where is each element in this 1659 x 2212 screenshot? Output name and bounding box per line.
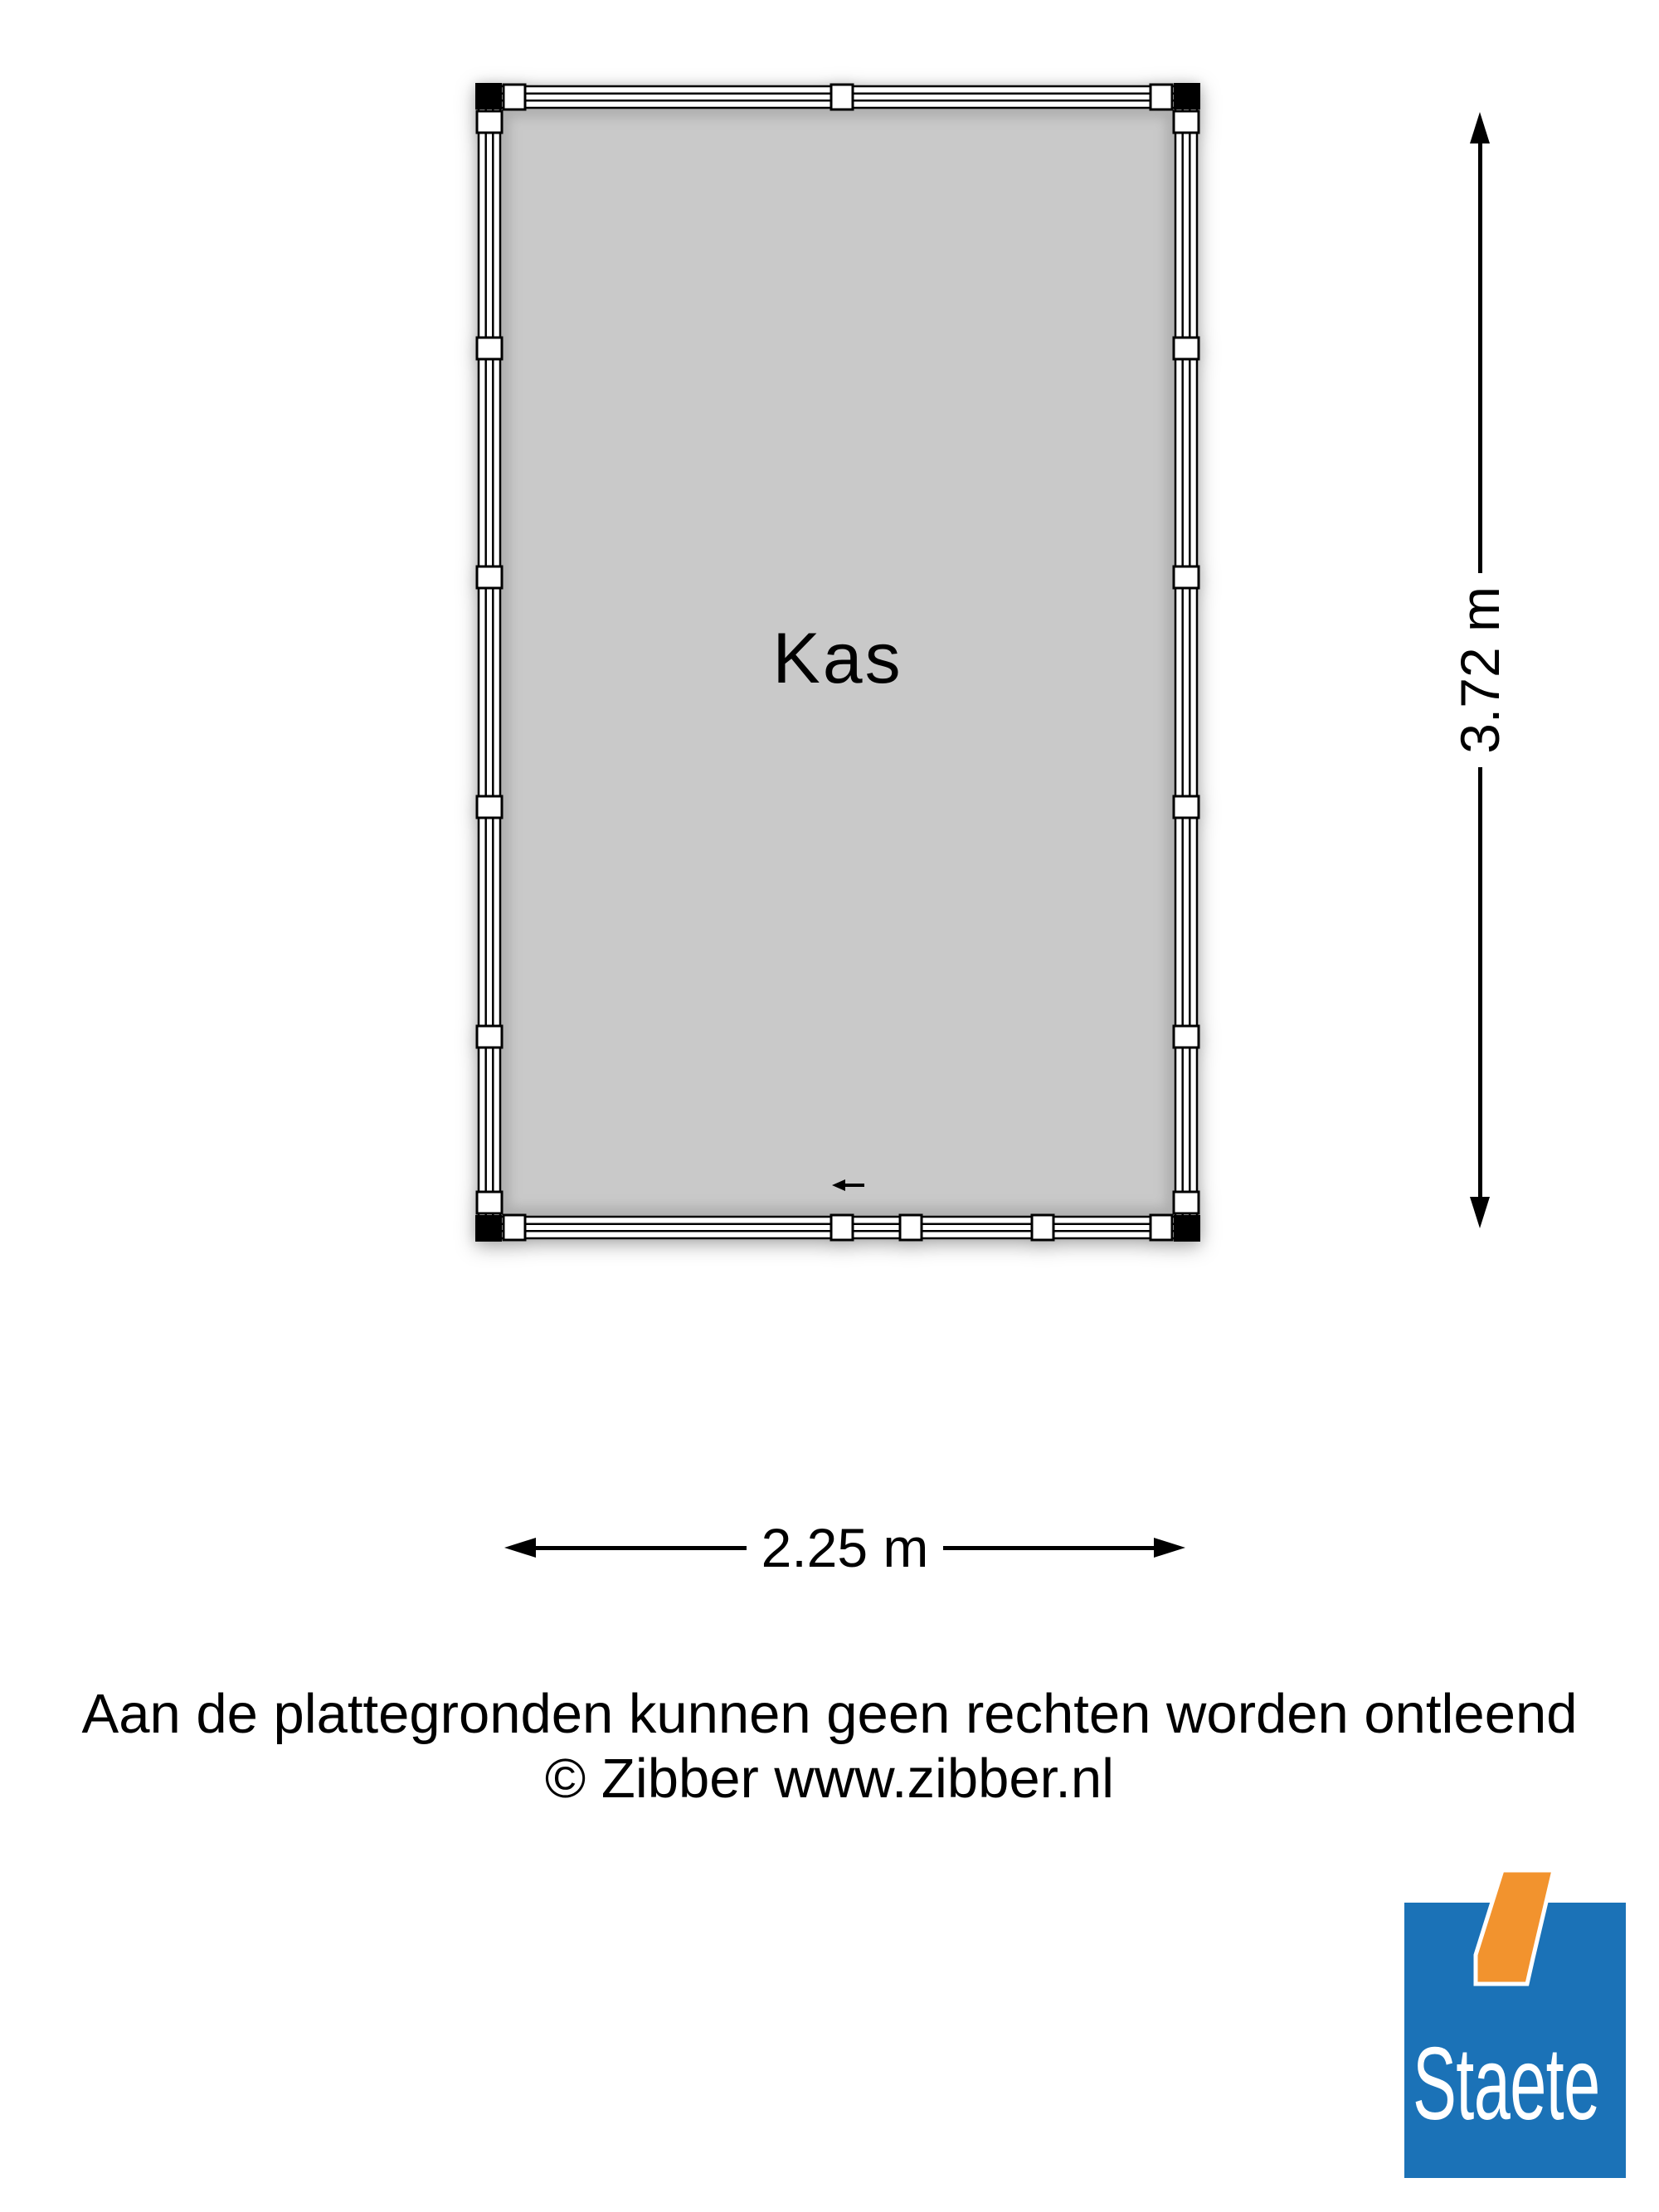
room-label: Kas	[475, 618, 1200, 700]
arrow-up-icon	[1470, 112, 1490, 143]
dimension-horizontal-label: 2.25 m	[761, 1516, 929, 1579]
dimension-line	[536, 1546, 747, 1550]
floorplan-page: Kas 3.72 m 2.25 m Aan de plattegronden k…	[0, 0, 1659, 2212]
disclaimer-text: Aan de plattegronden kunnen geen rechten…	[0, 1682, 1659, 1746]
dimension-line	[943, 1546, 1154, 1550]
dimension-horizontal: 2.25 m	[504, 1520, 1185, 1575]
copyright-text: © Zibber www.zibber.nl	[0, 1747, 1659, 1811]
staete-logo-svg: Staete	[1404, 1869, 1626, 2178]
dimension-line	[1478, 143, 1482, 573]
arrow-right-icon	[1154, 1538, 1185, 1558]
staete-logo: Staete	[1404, 1869, 1626, 2178]
dimension-vertical-label: 3.72 m	[1448, 586, 1511, 754]
arrow-left-icon	[504, 1538, 536, 1558]
logo-text: Staete	[1413, 2027, 1600, 2142]
dimension-line	[1478, 767, 1482, 1197]
dimension-vertical: 3.72 m	[1461, 112, 1499, 1228]
arrow-down-icon	[1470, 1197, 1490, 1228]
